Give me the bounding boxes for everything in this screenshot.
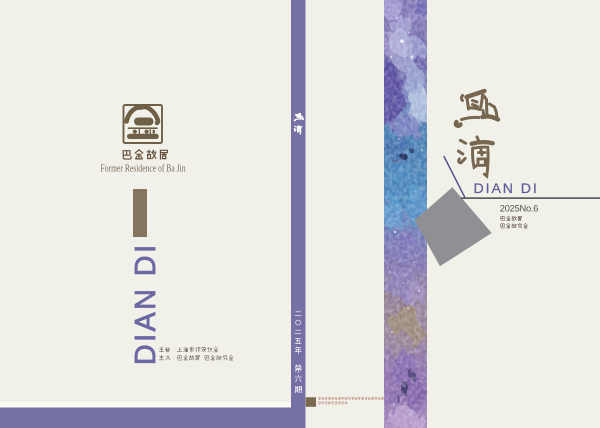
svg-text:2025No.6: 2025No.6 <box>500 204 539 214</box>
svg-text:Former Residence of Ba Jin: Former Residence of Ba Jin <box>101 164 186 175</box>
svg-text:DIAN DI: DIAN DI <box>474 181 537 197</box>
svg-text:DIAN DI: DIAN DI <box>130 245 162 365</box>
